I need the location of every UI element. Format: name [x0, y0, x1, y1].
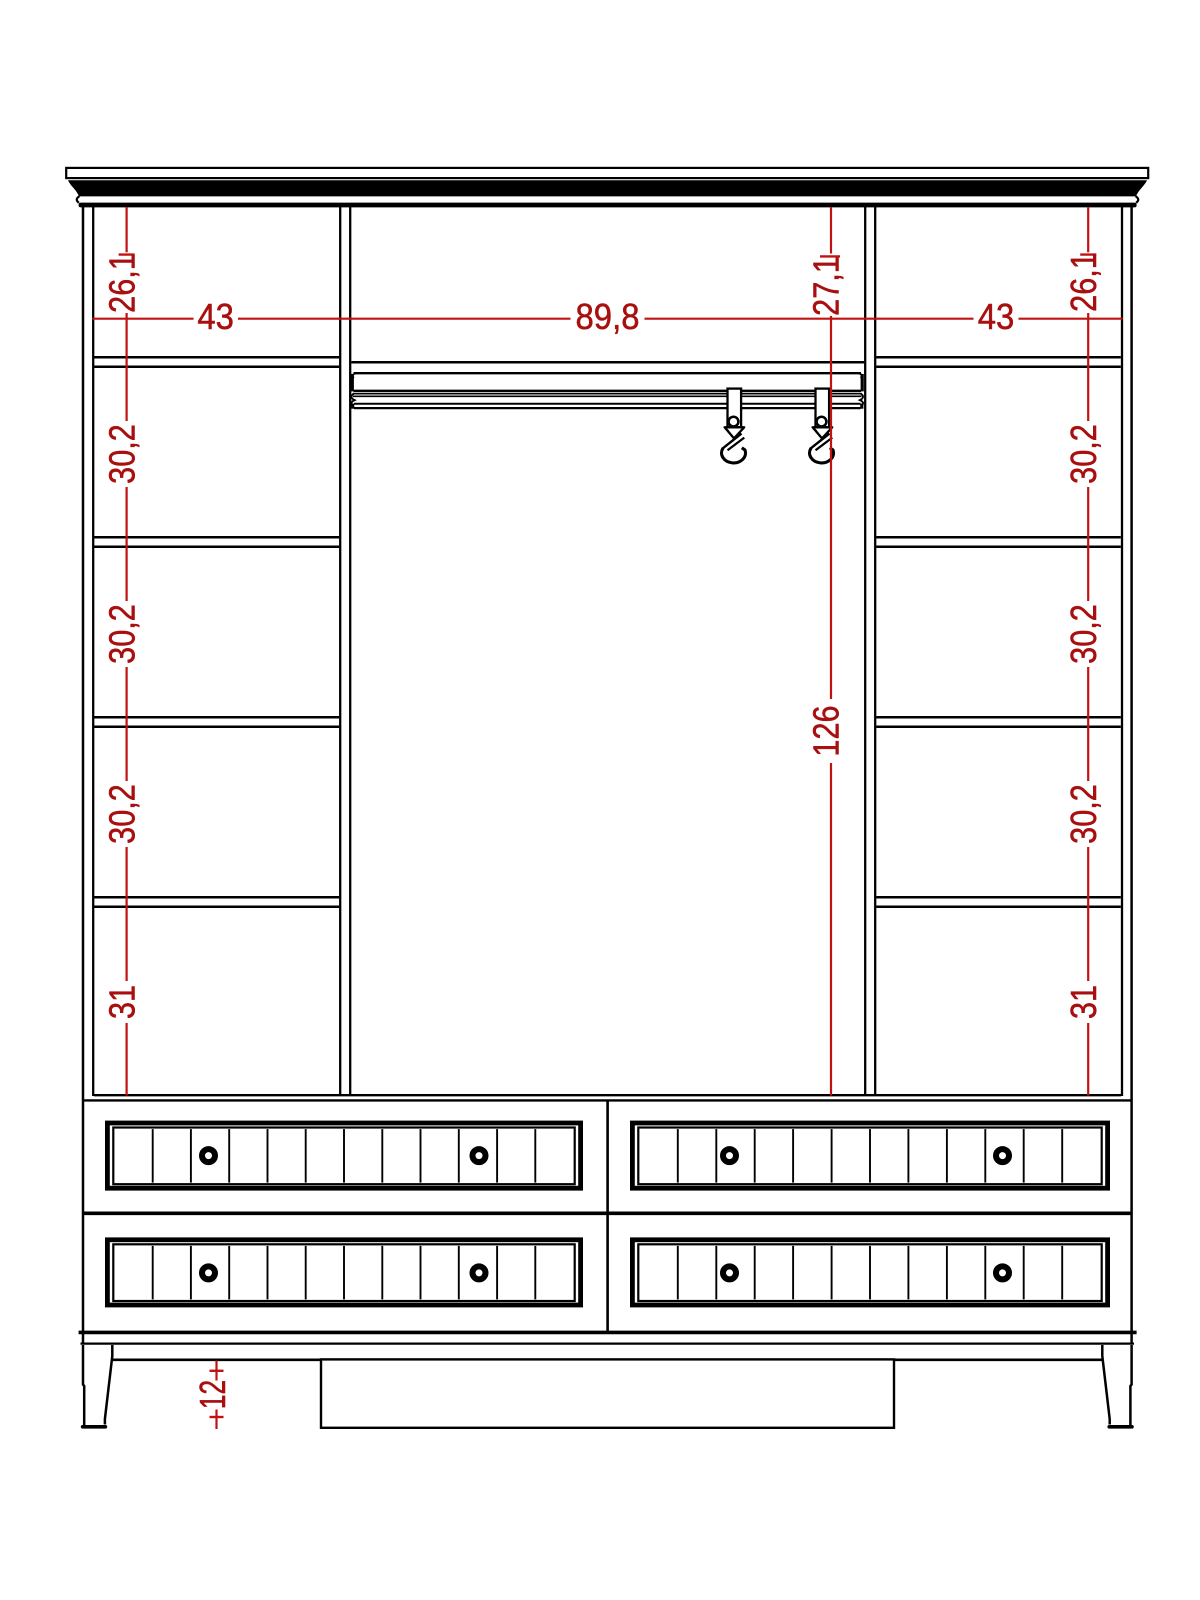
svg-text:43: 43	[197, 297, 234, 337]
svg-text:89,8: 89,8	[576, 297, 640, 337]
svg-text:31: 31	[102, 985, 143, 1019]
svg-text:30,2: 30,2	[1063, 424, 1104, 484]
svg-text:26,1: 26,1	[1063, 252, 1104, 312]
svg-text:26,1: 26,1	[102, 253, 143, 313]
svg-text:27,1: 27,1	[806, 256, 847, 316]
svg-text:12: 12	[192, 1380, 233, 1409]
svg-text:31: 31	[1063, 985, 1104, 1019]
svg-text:126: 126	[806, 705, 847, 756]
svg-text:43: 43	[978, 297, 1015, 337]
svg-text:30,2: 30,2	[102, 784, 143, 844]
svg-text:30,2: 30,2	[1063, 604, 1104, 664]
svg-text:30,2: 30,2	[102, 604, 143, 664]
svg-text:30,2: 30,2	[1063, 784, 1104, 844]
svg-text:30,2: 30,2	[102, 424, 143, 484]
